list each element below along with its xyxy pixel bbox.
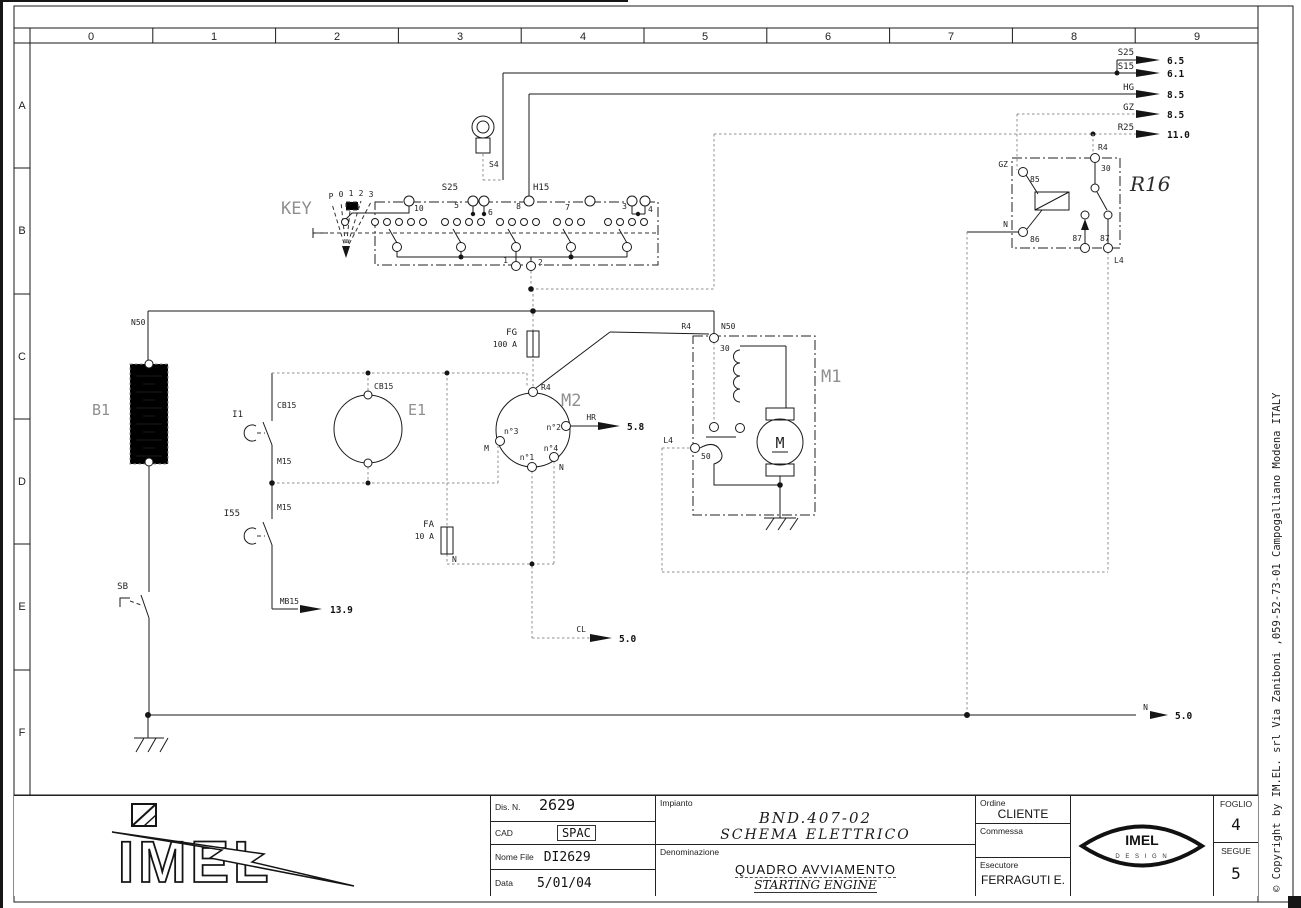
sheet-frame [14,6,1293,902]
fuse-fg: FG 100 A [493,289,539,390]
disconnect-sb: SB [117,582,149,715]
terminal-30: 30 [1101,164,1111,173]
cad-value: SPAC [557,825,596,841]
drawing-info-column: Dis. N. 2629 CAD SPAC Nome File DI2629 D… [490,796,655,896]
dis-n-value: 2629 [539,796,575,814]
col-label-6: 6 [825,31,831,43]
col-label-4: 4 [580,31,586,43]
wire-label-cb15-e1: CB15 [374,382,393,391]
dest-hg: 8.5 [1167,90,1184,101]
title-block: IMEL Dis. N. 2629 CAD SPAC Nome File DI2… [14,795,1258,896]
dest-mb15: 13.9 [330,605,353,616]
terminal-r4-m2: R4 [541,383,551,392]
row-label-f: F [19,727,26,739]
dis-n-label: Dis. N. [495,802,521,812]
col-label-0: 0 [88,31,94,43]
wire-label-n-m2: N [559,463,564,472]
wire-label-m15-i55: M15 [277,503,292,512]
dest-gz: 8.5 [1167,110,1184,121]
imel-design-eye-logo: IMEL D E S I G N [1076,815,1208,877]
key-symbol-label-s4: S4 [489,160,499,169]
key-terminal-1: 1 [503,256,508,265]
impianto-line1: BND.407-02 [759,809,872,827]
wire-label-n-fa: N [452,555,457,564]
wire-label-s25: S25 [1118,48,1134,58]
wire-label-n-bottom: N [1143,703,1148,712]
terminal-30-m1: 30 [720,344,730,353]
key-terminal-2: 2 [538,258,543,267]
data-value: 5/01/04 [537,876,592,891]
wire-label-mb15: MB15 [280,597,299,606]
wire-label-hg: HG [1123,83,1134,93]
dest-cl: 5.0 [619,634,636,645]
wire-label-s25-key: S25 [442,183,458,193]
denominazione-label: Denominazione [660,847,719,857]
battery-b1: N50 B1 [92,311,714,592]
component-label-e1: E1 [408,401,426,419]
key-position-p: P [329,192,334,201]
motor-symbol-m: M [775,434,784,452]
ordine-label: Ordine [980,798,1006,808]
wire-label-m-m2: M [484,444,489,453]
wire-label-n-relay: N [1003,220,1008,229]
description-column: Impianto BND.407-02 SCHEMA ELETTRICO Den… [655,796,975,896]
key-terminal-10: 10 [414,204,424,213]
key-position-1: 1 [349,189,354,198]
wire-label-m15-i1: M15 [277,457,292,466]
foglio-label: FOGLIO [1214,799,1258,809]
contact-i55: M15 I55 MB15 13.9 [224,483,353,616]
esecutore-label: Esecutore [980,860,1018,870]
wire-label-n50-m1: N50 [721,322,736,331]
sheet-number-column: FOGLIO 4 SEGUE 5 [1213,796,1258,896]
key-terminal-4: 4 [648,205,653,214]
nome-file-label: Nome File [495,852,534,862]
commessa-label: Commessa [980,826,1023,836]
pencil-box-icon [132,804,156,826]
key-terminal-6: 6 [488,208,493,217]
key-contact-row [342,219,648,226]
wire-label-r25: R25 [1118,123,1134,133]
imel-logo: IMEL [110,798,410,896]
wire-label-cb15-i1: CB15 [277,401,296,410]
order-column: Ordine CLIENTE Commessa Esecutore FERRAG… [975,796,1070,896]
col-label-8: 8 [1071,31,1077,43]
col-label-3: 3 [457,31,463,43]
offpage-arrows: S25 6.5 S15 6.1 HG 8.5 GZ 8.5 R25 11.0 [503,48,1190,141]
key-switch: KEY P 0 1 2 3 S4 [281,73,658,289]
wire-label-l4-relay: L4 [1114,256,1124,265]
component-label-key: KEY [281,199,312,219]
key-position-0: 0 [339,190,344,199]
nome-file-value: DI2629 [544,850,591,865]
lamp-e1: CB15 E1 [272,373,527,483]
contact-i1: CB15 I1 M15 [232,373,296,483]
row-label-b: B [18,225,25,237]
component-label-m1: M1 [821,367,841,387]
row-label-e: E [18,601,25,613]
junction-dots [145,286,970,718]
key-terminal-5: 5 [454,201,459,210]
terminal-n1: n°1 [520,453,535,462]
key-position-2: 2 [359,189,364,198]
key-position-3: 3 [369,190,374,199]
copyright-note: © Copyright by IM.EL. srl Via Zaniboni ,… [1271,392,1283,892]
eye-logo-line2: D E S I G N [1115,854,1168,860]
logo-area: IMEL [14,796,490,896]
dest-r25: 11.0 [1167,130,1190,141]
terminal-50-m1: 50 [701,452,711,461]
terminal-87a: 87 [1072,234,1082,243]
wire-label-cl: CL [576,625,586,634]
wire-label-n50: N50 [131,318,146,327]
data-label: Data [495,878,513,888]
fuse-rating-fg: 100 A [493,340,517,349]
col-label-5: 5 [702,31,708,43]
dest-s25: 6.5 [1167,56,1184,67]
scan-corner-mark [1288,896,1301,908]
scan-edge-left [0,0,3,908]
segue-value: 5 [1214,864,1258,883]
row-label-a: A [18,100,26,112]
component-label-i1: I1 [232,410,243,420]
ordine-value: CLIENTE [976,807,1070,821]
denominazione-line1: QUADRO AVVIAMENTO [735,862,896,878]
key-terminal-8: 8 [516,202,521,211]
dest-n-bottom: 5.0 [1175,711,1192,722]
key-terminal-7: 7 [565,203,570,212]
fuse-rating-fa: 10 A [415,532,434,541]
segue-label: SEGUE [1214,846,1258,856]
component-label-m2: M2 [561,391,581,411]
denominazione-line2: STARTING ENGINE [754,878,877,893]
component-label-sb: SB [117,582,128,592]
fuse-label-fg: FG [506,328,517,338]
row-label-d: D [18,476,26,488]
ground-symbol-m1 [764,518,798,530]
ground-symbol-main [134,738,168,752]
terminal-n2: n°2 [547,423,562,432]
wire-label-l4-m1: L4 [663,436,673,445]
ground-rail: N 5.0 [134,232,1192,752]
col-label-2: 2 [334,31,340,43]
w ire-label-h15-key: H15 [533,183,549,193]
design-logo-cell: IMEL D E S I G N [1070,796,1213,896]
terminal-85: 85 [1030,175,1040,184]
impianto-line2: SCHEMA ELETTRICO [720,827,911,843]
impianto-label: Impianto [660,798,693,808]
terminal-n4: n°4 [544,444,559,453]
terminal-n3: n°3 [504,427,519,436]
eye-logo-line1: IMEL [1125,832,1159,848]
fuse-label-fa: FA [423,520,434,530]
key-terminal-3: 3 [622,202,627,211]
foglio-value: 4 [1214,815,1258,834]
col-label-1: 1 [211,31,217,43]
starter-motor-m1: R4 N50 30 50 L4 M M1 [662,322,1108,572]
dest-hr: 5.8 [627,422,644,433]
component-label-b1: B1 [92,401,110,419]
cad-label: CAD [495,828,513,838]
schematic-sheet: 0 1 2 3 4 5 6 7 8 9 A B C D E F S25 6.5 … [0,0,1301,908]
esecutore-value: FERRAGUTI E. [976,873,1070,887]
row-label-c: C [18,351,26,363]
wire-label-hr: HR [586,413,596,422]
dest-s15: 6.1 [1167,69,1184,80]
wire-label-r4-relay: R4 [1098,143,1108,152]
terminal-87b: 87 [1100,234,1110,243]
relay-r16: R4 30 85 86 87 87 GZ N L4 R16 [967,114,1171,572]
terminal-86: 86 [1030,235,1040,244]
wire-label-gz: GZ [1123,103,1134,113]
schematic-canvas: 0 1 2 3 4 5 6 7 8 9 A B C D E F S25 6.5 … [0,0,1301,908]
scan-edge-top [0,0,628,2]
col-label-9: 9 [1194,31,1200,43]
ignition-key-symbol: S4 [472,73,503,180]
wire-label-s15: S15 [1118,62,1134,72]
component-label-r16: R16 [1129,172,1171,196]
component-label-i55: I55 [224,509,240,519]
wire-label-gz-relay: GZ [998,160,1008,169]
wire-label-r4-m1: R4 [681,322,691,331]
col-label-7: 7 [948,31,954,43]
